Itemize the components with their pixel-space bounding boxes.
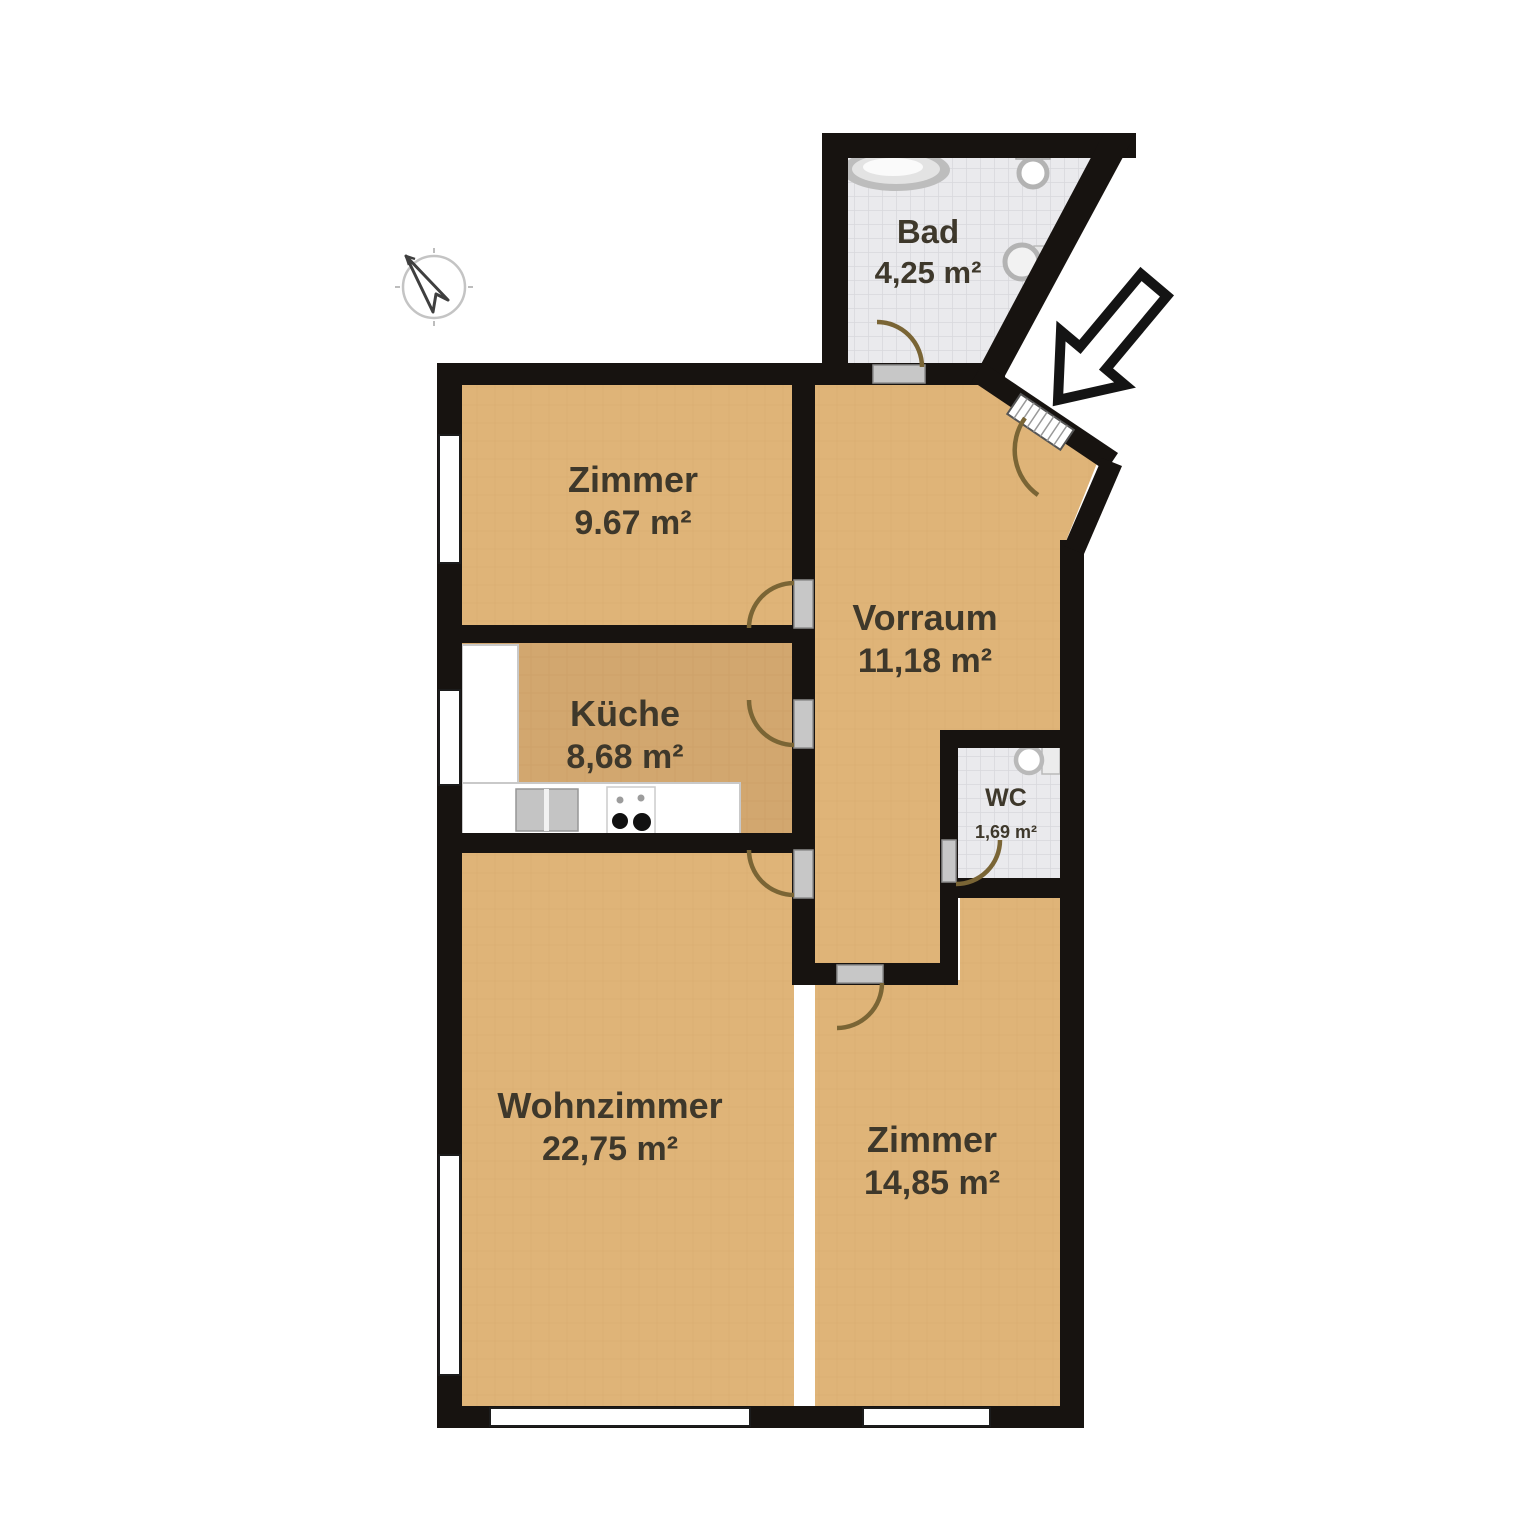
floor-plan-svg: Bad 4,25 m² Zimmer 9.67 m² Vorraum 11,18… <box>0 0 1536 1536</box>
wall-bad-left <box>822 133 848 385</box>
room-bad-area-label: 4,25 m² <box>875 255 982 290</box>
room-kueche-name-label: Küche <box>570 693 680 734</box>
stove-icon <box>607 787 655 834</box>
room-vorraum-area-label: 11,18 m² <box>858 642 992 680</box>
door-kueche-threshold <box>794 700 813 748</box>
room-zimmer2-area-label: 14,85 m² <box>864 1164 1000 1202</box>
room-vorraum-name-label: Vorraum <box>852 597 997 638</box>
door-wc-threshold <box>942 840 956 882</box>
room-zimmer1-area-label: 9.67 m² <box>574 504 691 542</box>
door-bad-threshold <box>873 365 925 383</box>
toilet-icon-wc <box>1016 744 1060 774</box>
room-kueche-area-label: 8,68 m² <box>566 738 683 776</box>
door-wohnzimmer-threshold <box>794 850 813 898</box>
wall-bad-top <box>822 133 1136 158</box>
room-zimmer2-name-label: Zimmer <box>867 1119 997 1160</box>
window-zimmer2-bottom <box>863 1408 990 1426</box>
kitchen-sink-icon <box>516 789 578 831</box>
room-bad-name-label: Bad <box>897 213 959 250</box>
door-zimmer2-threshold <box>837 965 883 983</box>
room-zimmer1-name-label: Zimmer <box>568 459 698 500</box>
room-wohnzimmer-name-label: Wohnzimmer <box>497 1085 722 1126</box>
wall-wc-bottom <box>940 878 1084 898</box>
wall-kueche-wohnzimmer <box>437 833 815 853</box>
wall-zimmer-kueche <box>437 625 815 643</box>
window-zimmer1-left <box>439 435 460 563</box>
room-wohnzimmer-area-label: 22,75 m² <box>542 1130 678 1168</box>
window-kueche-left <box>439 690 460 785</box>
window-wohnzimmer-bottom <box>490 1408 750 1426</box>
window-wohnzimmer-left <box>439 1155 460 1375</box>
room-wc-area-label: 1,69 m² <box>975 822 1037 842</box>
room-wc-name-label: WC <box>985 784 1027 812</box>
wall-wc-top <box>940 730 1084 748</box>
door-zimmer1-threshold <box>794 580 813 628</box>
floor-plan-page: Bad 4,25 m² Zimmer 9.67 m² Vorraum 11,18… <box>0 0 1536 1536</box>
wall-right <box>1060 540 1084 1428</box>
